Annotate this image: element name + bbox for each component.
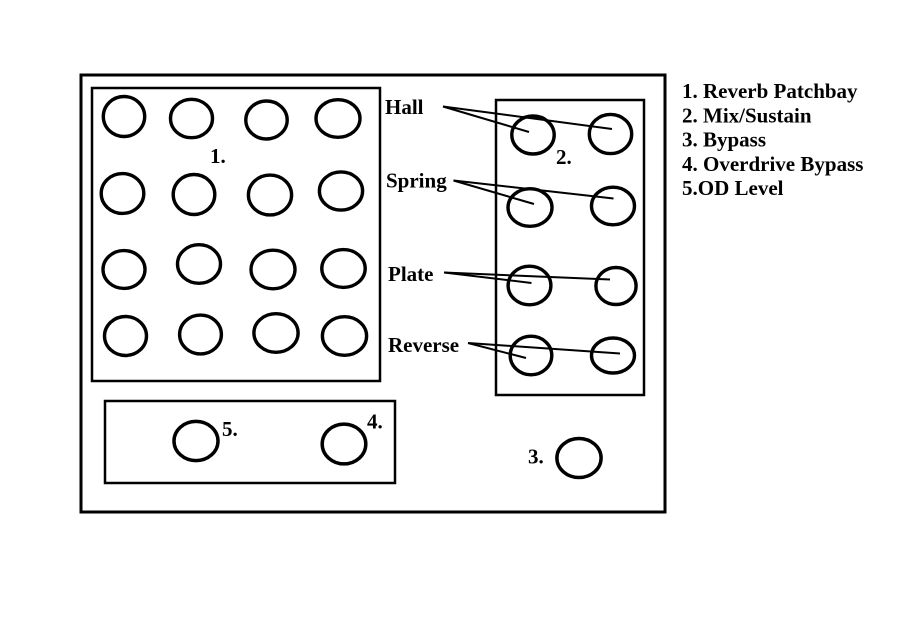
svg-text:3. Bypass: 3. Bypass (682, 128, 766, 152)
svg-text:Plate: Plate (388, 262, 433, 286)
svg-text:Reverse: Reverse (388, 333, 459, 357)
svg-text:5.: 5. (222, 417, 238, 441)
svg-text:1. Reverb Patchbay: 1. Reverb Patchbay (682, 79, 858, 103)
svg-text:2. Mix/Sustain: 2. Mix/Sustain (682, 103, 812, 127)
svg-text:4.: 4. (367, 410, 383, 434)
svg-text:1.: 1. (210, 144, 226, 168)
svg-text:Hall: Hall (385, 95, 424, 119)
svg-text:4. Overdrive Bypass: 4. Overdrive Bypass (682, 152, 863, 176)
svg-text:5.OD Level: 5.OD Level (682, 176, 784, 200)
svg-text:3.: 3. (528, 445, 544, 469)
svg-text:2.: 2. (556, 145, 572, 169)
svg-text:Spring: Spring (386, 169, 447, 193)
